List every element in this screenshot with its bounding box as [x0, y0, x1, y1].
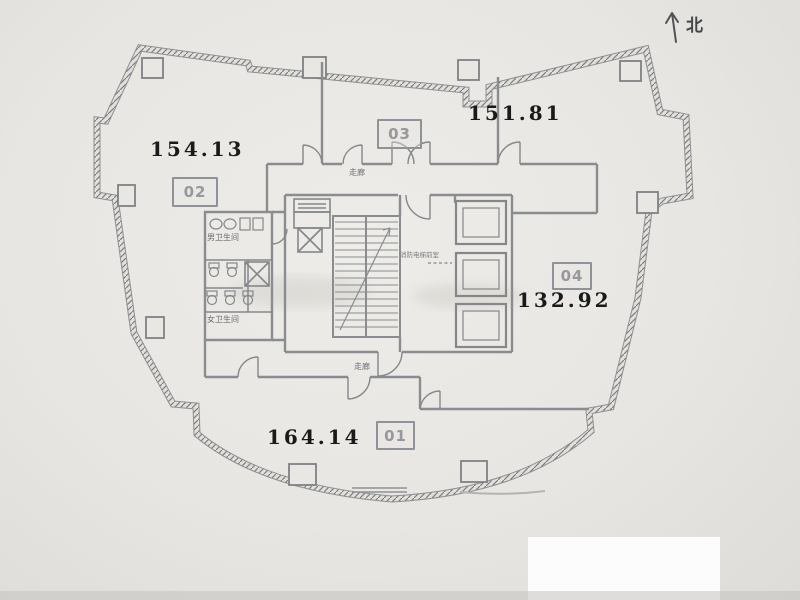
unit-04-number: 04	[561, 267, 584, 285]
scan-bottom-edge	[0, 591, 800, 600]
unit-03-number: 03	[388, 125, 411, 143]
unit-01-area: 164.14	[267, 425, 362, 449]
unit-02-badge: 02	[172, 177, 218, 207]
womens-restroom-label: 女卫生间	[207, 316, 239, 324]
corridor-label-bottom: 走廊	[354, 363, 370, 371]
mens-restroom-label: 男卫生间	[207, 234, 239, 242]
unit-03-area: 151.81	[468, 101, 563, 125]
corridor-label-top: 走廊	[349, 169, 365, 177]
floorplan-linework	[0, 0, 800, 600]
unit-02-number: 02	[184, 183, 207, 201]
door-arcs	[238, 142, 520, 409]
floorplan-scan: 北 154.13 151.81 132.92 164.14 02 03 04 0…	[0, 0, 800, 600]
fire-elevator-lobby-label: 消防电梯前室	[400, 252, 439, 259]
north-label: 北	[686, 11, 703, 36]
elevator-shafts	[428, 201, 506, 347]
unit-01-badge: 01	[376, 421, 415, 450]
north-arrow-icon	[666, 13, 678, 42]
unit-04-badge: 04	[552, 262, 592, 290]
unit-03-badge: 03	[377, 119, 422, 149]
unit-02-area: 154.13	[150, 137, 245, 161]
unit-01-number: 01	[384, 427, 407, 445]
unit-04-area: 132.92	[517, 288, 612, 312]
stairwell	[333, 216, 400, 337]
